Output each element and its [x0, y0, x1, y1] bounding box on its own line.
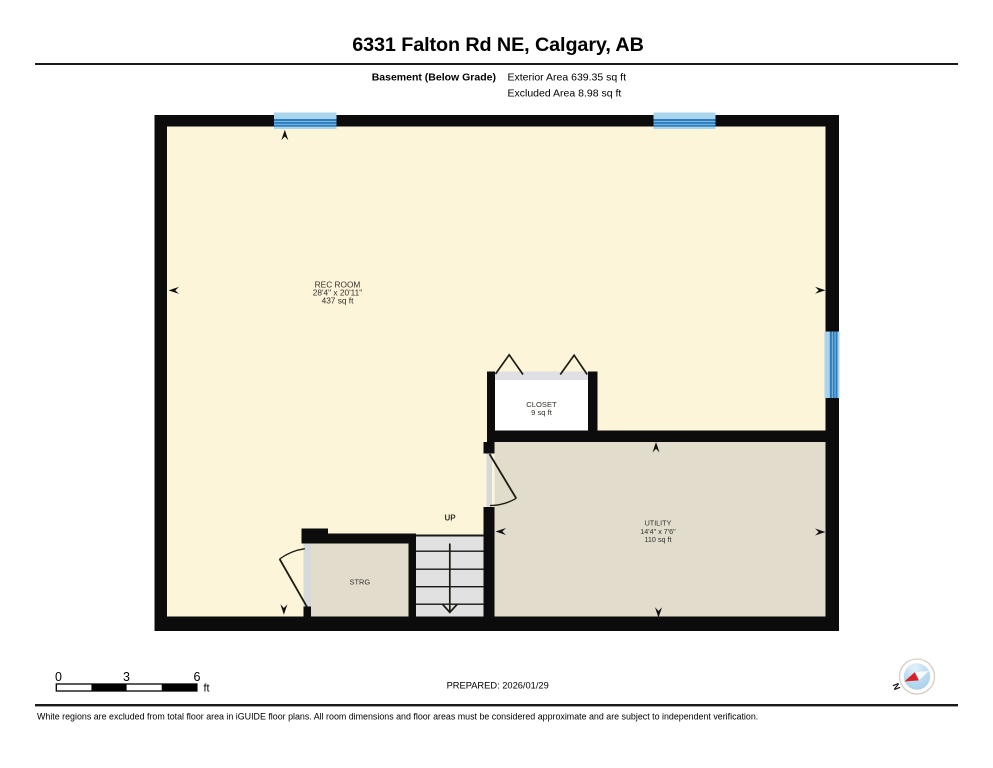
svg-text:0: 0: [55, 670, 62, 684]
svg-text:Basement (Below Grade): Basement (Below Grade): [372, 72, 496, 84]
svg-text:110 sq ft: 110 sq ft: [644, 535, 671, 544]
svg-text:STRG: STRG: [350, 577, 371, 586]
svg-text:White regions are excluded fro: White regions are excluded from total fl…: [37, 712, 758, 722]
svg-text:437 sq ft: 437 sq ft: [322, 295, 355, 305]
svg-text:6: 6: [194, 670, 201, 684]
svg-text:6331 Falton Rd NE, Calgary, AB: 6331 Falton Rd NE, Calgary, AB: [352, 34, 644, 56]
svg-text:UP: UP: [444, 513, 456, 522]
svg-text:Exterior Area 639.35 sq ft: Exterior Area 639.35 sq ft: [508, 72, 627, 84]
svg-text:3: 3: [123, 670, 130, 684]
svg-text:ft: ft: [204, 683, 210, 695]
svg-text:Excluded Area 8.98 sq ft: Excluded Area 8.98 sq ft: [508, 88, 622, 100]
svg-text:PREPARED: 2026/01/29: PREPARED: 2026/01/29: [447, 680, 549, 690]
svg-text:9 sq ft: 9 sq ft: [531, 408, 553, 417]
